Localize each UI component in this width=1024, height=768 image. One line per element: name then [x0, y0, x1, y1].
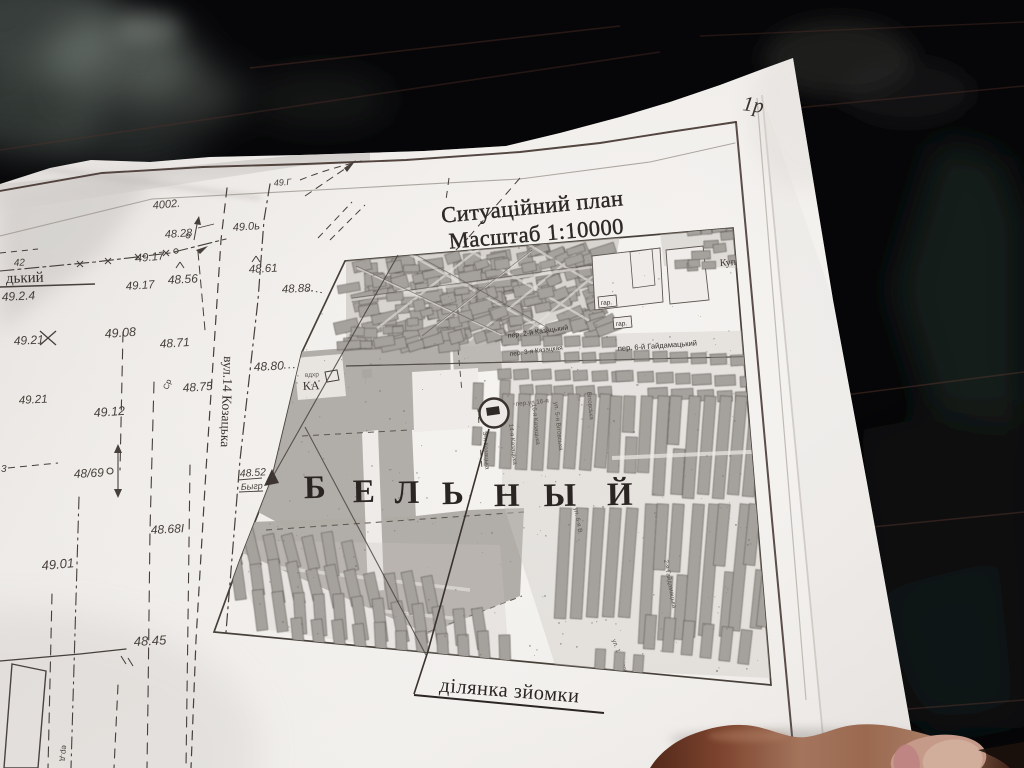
svg-text:Й: Й: [607, 476, 634, 513]
svg-text:49.08: 49.08: [104, 325, 136, 341]
svg-text:3: 3: [1, 464, 7, 475]
svg-text:ер.д: ер.д: [59, 745, 69, 762]
svg-text:Н: Н: [494, 478, 521, 514]
svg-text:4002.: 4002.: [152, 198, 180, 212]
svg-text:48.28: 48.28: [164, 227, 193, 241]
svg-text:48.52: 48.52: [239, 466, 266, 480]
svg-text:48.68I: 48.68I: [150, 521, 185, 537]
svg-text:Е: Е: [353, 474, 376, 510]
svg-text:вдхр: вдхр: [305, 371, 320, 379]
svg-text:Быгр: Быгр: [240, 480, 263, 492]
svg-text:1р: 1р: [741, 91, 765, 118]
svg-text:49.17: 49.17: [135, 250, 165, 265]
svg-text:48.75: 48.75: [182, 379, 213, 395]
svg-text:42: 42: [14, 257, 26, 269]
svg-text:гар.: гар.: [616, 320, 628, 328]
svg-text:48.61: 48.61: [249, 263, 278, 276]
svg-text:Б: Б: [304, 470, 326, 506]
svg-text:Ь: Ь: [442, 476, 464, 512]
svg-text:48.80: 48.80: [253, 358, 284, 374]
svg-text:вул.14 Козацька: вул.14 Козацька: [218, 356, 236, 448]
svg-text:Ы: Ы: [543, 478, 576, 515]
svg-text:48.45: 48.45: [133, 632, 167, 649]
svg-text:49.21: 49.21: [19, 394, 48, 407]
svg-text:48.56: 48.56: [167, 271, 198, 287]
svg-text:49.21: 49.21: [13, 332, 44, 348]
svg-text:49.0ь: 49.0ь: [232, 220, 260, 234]
svg-text:48/69: 48/69: [73, 465, 104, 481]
svg-text:гар.: гар.: [601, 299, 613, 307]
svg-text:48.88.: 48.88.: [282, 282, 315, 296]
svg-text:49.01: 49.01: [41, 555, 75, 573]
svg-text:49.17: 49.17: [125, 279, 155, 293]
svg-text:49.Г: 49.Г: [273, 177, 292, 188]
svg-text:48.71: 48.71: [159, 335, 190, 351]
svg-text:49.12: 49.12: [93, 404, 125, 420]
svg-text:Л: Л: [394, 475, 420, 511]
svg-text:дький: дький: [6, 270, 44, 287]
svg-text:49.2.4: 49.2.4: [1, 288, 35, 304]
